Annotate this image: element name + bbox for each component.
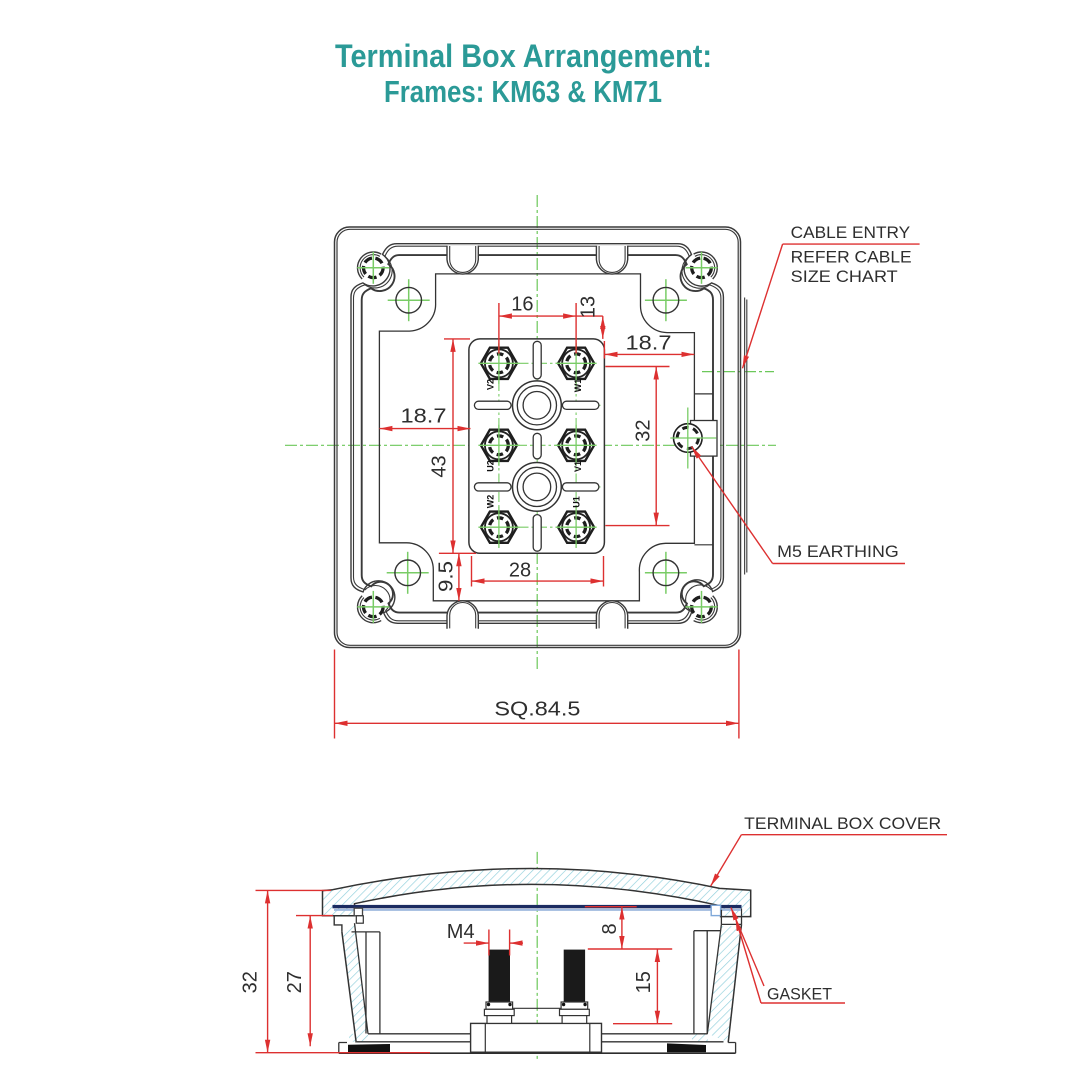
svg-text:Terminal Box Arrangement:: Terminal Box Arrangement: <box>335 38 712 74</box>
svg-text:U1: U1 <box>572 496 582 508</box>
svg-text:43: 43 <box>429 455 451 477</box>
svg-text:9.5: 9.5 <box>436 561 458 592</box>
svg-text:16: 16 <box>511 294 533 316</box>
svg-text:18.7: 18.7 <box>401 406 447 428</box>
svg-text:REFER CABLE: REFER CABLE <box>791 248 912 267</box>
svg-text:8: 8 <box>599 923 621 934</box>
svg-text:TERMINAL BOX COVER: TERMINAL BOX COVER <box>744 814 941 833</box>
svg-text:32: 32 <box>633 419 655 441</box>
svg-text:32: 32 <box>239 971 261 993</box>
svg-text:15: 15 <box>633 971 655 993</box>
svg-text:GASKET: GASKET <box>767 985 832 1004</box>
svg-text:M5 EARTHING: M5 EARTHING <box>777 542 899 561</box>
svg-text:V2: V2 <box>486 379 496 390</box>
svg-text:Frames: KM63 & KM71: Frames: KM63 & KM71 <box>384 74 662 109</box>
svg-text:SIZE CHART: SIZE CHART <box>791 267 898 286</box>
svg-text:SQ.84.5: SQ.84.5 <box>494 699 580 721</box>
svg-text:W1: W1 <box>573 379 583 393</box>
svg-text:V1: V1 <box>573 461 583 472</box>
svg-text:18.7: 18.7 <box>626 333 672 355</box>
svg-text:27: 27 <box>284 971 306 993</box>
svg-text:W2: W2 <box>486 495 496 509</box>
svg-text:28: 28 <box>509 560 531 582</box>
svg-text:13: 13 <box>578 296 600 318</box>
svg-text:M4: M4 <box>447 921 475 943</box>
svg-text:U2: U2 <box>486 460 496 472</box>
svg-text:CABLE ENTRY: CABLE ENTRY <box>791 223 911 242</box>
